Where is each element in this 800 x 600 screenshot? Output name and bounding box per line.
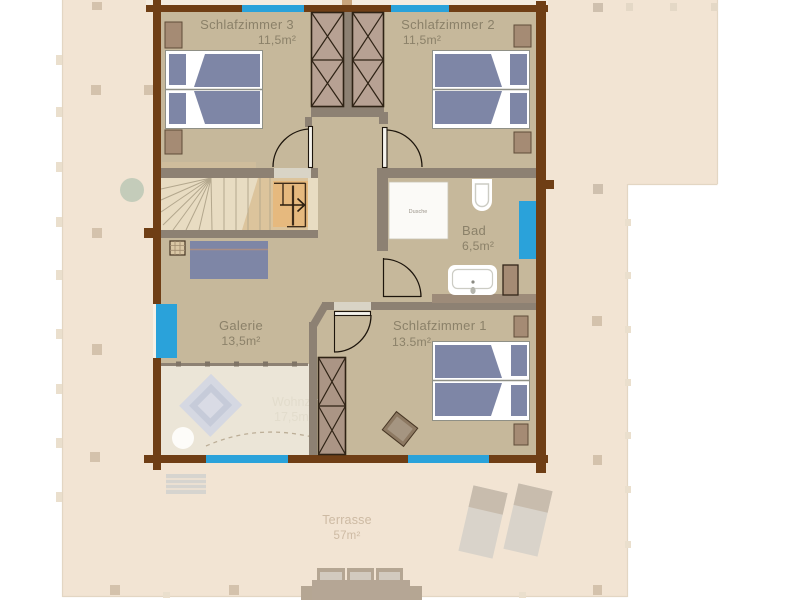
- svg-text:Galerie: Galerie: [219, 318, 263, 333]
- svg-text:11,5m²: 11,5m²: [258, 33, 296, 47]
- svg-text:Bad: Bad: [462, 223, 486, 238]
- svg-text:11,5m²: 11,5m²: [403, 33, 441, 47]
- svg-text:17,5m²: 17,5m²: [274, 410, 313, 424]
- svg-text:Terrasse: Terrasse: [322, 513, 372, 527]
- svg-text:13.5m²: 13.5m²: [392, 335, 431, 349]
- svg-text:Dusche: Dusche: [409, 209, 428, 215]
- svg-text:Schlafzimmer 1: Schlafzimmer 1: [393, 318, 487, 333]
- svg-text:Schlafzimmer 2: Schlafzimmer 2: [401, 17, 495, 32]
- svg-text:13,5m²: 13,5m²: [221, 334, 260, 348]
- svg-text:6,5m²: 6,5m²: [462, 239, 494, 253]
- svg-text:Schlafzimmer 3: Schlafzimmer 3: [200, 17, 294, 32]
- svg-text:57m²: 57m²: [333, 530, 360, 542]
